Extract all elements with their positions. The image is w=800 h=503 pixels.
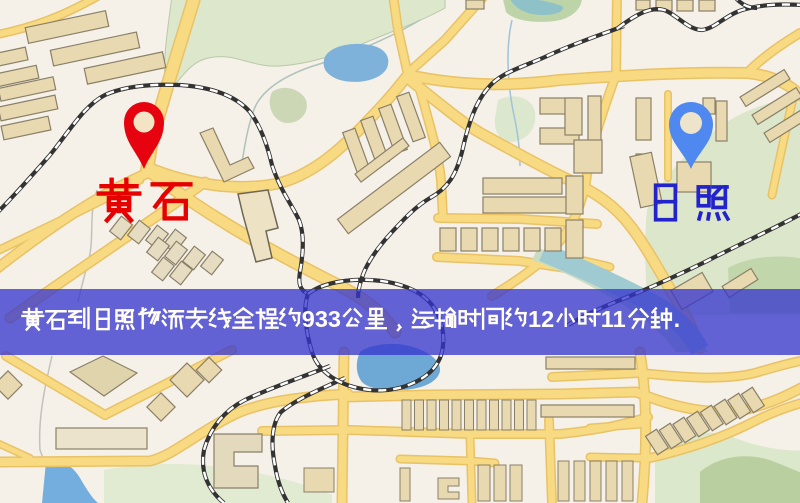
svg-text:.: . xyxy=(674,306,681,332)
svg-text:933: 933 xyxy=(302,306,341,332)
svg-text:11: 11 xyxy=(601,306,626,332)
svg-text:12: 12 xyxy=(528,306,554,332)
